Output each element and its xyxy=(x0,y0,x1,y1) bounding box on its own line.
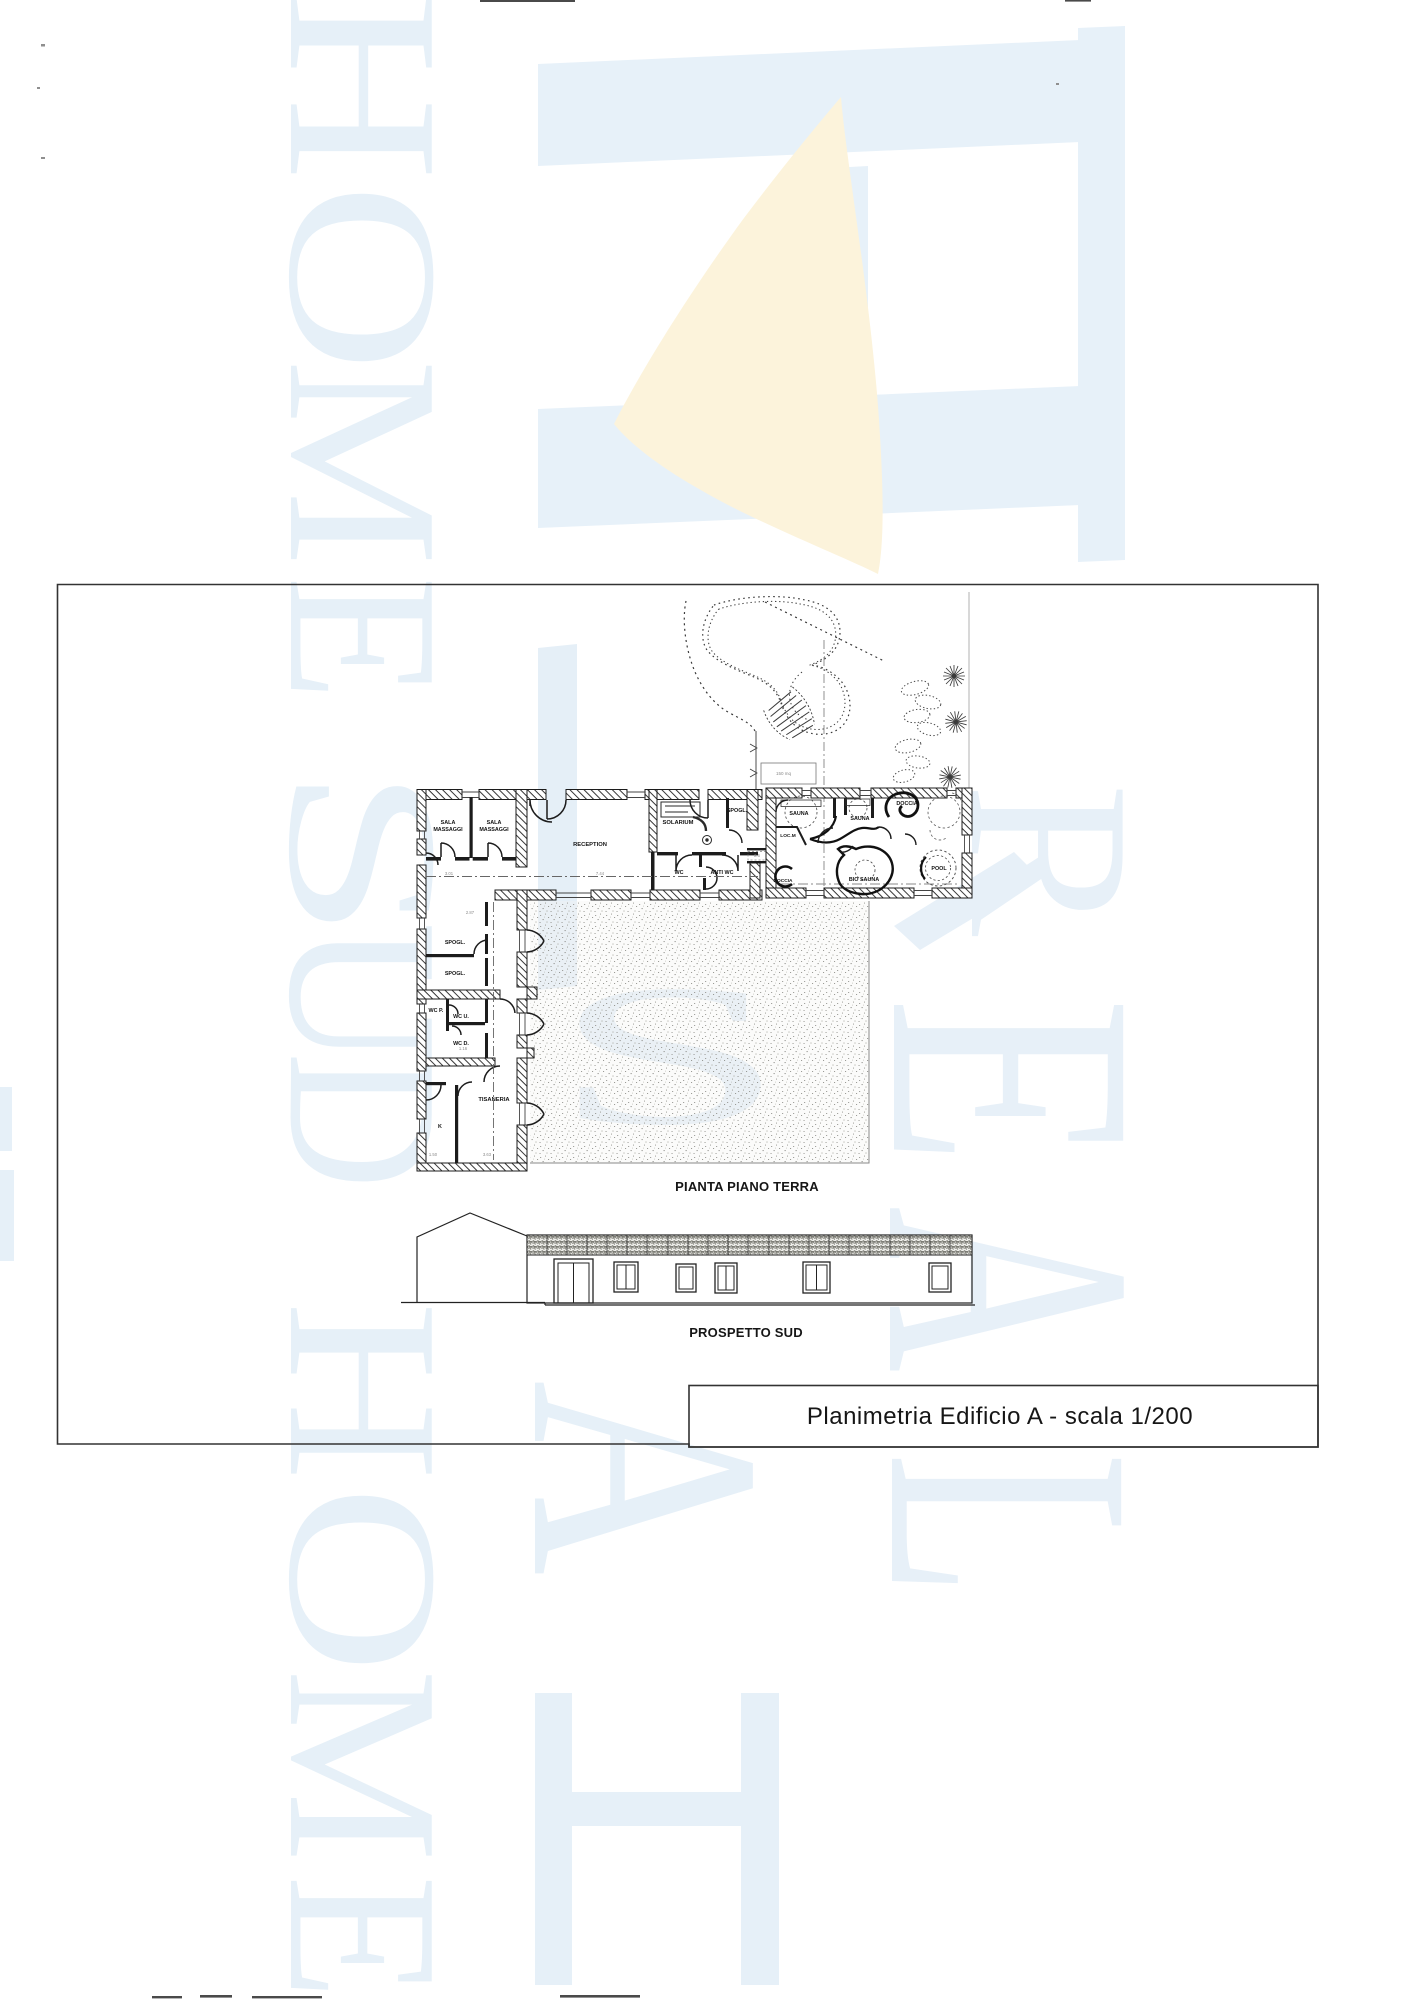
svg-text:WC U.: WC U. xyxy=(453,1014,469,1020)
svg-text:SAUNA: SAUNA xyxy=(789,811,808,817)
svg-text:H: H xyxy=(244,0,483,181)
svg-text:DOCCIA: DOCCIA xyxy=(774,878,793,884)
svg-text:SPOGL.: SPOGL. xyxy=(445,940,466,946)
svg-text:1.50: 1.50 xyxy=(429,1152,438,1157)
svg-text:SPOGL.: SPOGL. xyxy=(727,808,748,814)
svg-text:MASSAGGI: MASSAGGI xyxy=(433,827,463,833)
svg-text:Planimetria Edificio A - scala: Planimetria Edificio A - scala 1/200 xyxy=(807,1403,1193,1430)
svg-text:WC: WC xyxy=(675,870,684,876)
svg-text:E: E xyxy=(244,1875,483,2000)
svg-text:2.6: 2.6 xyxy=(754,853,760,858)
svg-text:SALA: SALA xyxy=(441,820,456,826)
svg-text:7.44: 7.44 xyxy=(596,871,605,876)
svg-text:SALA: SALA xyxy=(487,820,502,826)
svg-text:1.16: 1.16 xyxy=(459,1046,468,1051)
svg-text:3.63: 3.63 xyxy=(483,1152,492,1157)
svg-text:PROSPETTO SUD: PROSPETTO SUD xyxy=(689,1325,803,1340)
svg-text:A: A xyxy=(463,1380,828,1575)
svg-text:M: M xyxy=(244,1669,483,1862)
svg-text:E: E xyxy=(817,997,1204,1166)
svg-text:SPOGL.: SPOGL. xyxy=(445,971,466,977)
svg-text:ANTI WC: ANTI WC xyxy=(710,870,733,876)
svg-text:DOCCIA: DOCCIA xyxy=(896,801,917,807)
svg-text:SAUNA: SAUNA xyxy=(850,816,869,822)
svg-text:TISANERIA: TISANERIA xyxy=(478,1097,510,1103)
svg-text:K: K xyxy=(438,1124,442,1130)
svg-text:WC P.: WC P. xyxy=(429,1008,444,1014)
svg-text:150 mq: 150 mq xyxy=(776,771,792,776)
svg-text:A: A xyxy=(813,1206,1205,1372)
svg-text:3.01: 3.01 xyxy=(445,871,454,876)
svg-text:POOL: POOL xyxy=(931,866,947,872)
svg-text:MASSAGGI: MASSAGGI xyxy=(479,827,509,833)
svg-text:LOC.M: LOC.M xyxy=(780,833,795,839)
svg-text:PIANTA PIANO TERRA: PIANTA PIANO TERRA xyxy=(675,1179,819,1194)
svg-text:H: H xyxy=(244,1301,483,1481)
svg-text:2.87: 2.87 xyxy=(466,910,475,915)
svg-text:RECEPTION: RECEPTION xyxy=(573,842,607,848)
svg-text:E: E xyxy=(244,576,483,701)
svg-text:M: M xyxy=(244,359,483,566)
svg-text:O: O xyxy=(244,183,483,372)
svg-text:SOLARIUM: SOLARIUM xyxy=(663,820,694,826)
svg-text:O: O xyxy=(244,1485,483,1674)
svg-text:L: L xyxy=(816,1452,1204,1597)
svg-text:BIO SAUNA: BIO SAUNA xyxy=(849,877,879,883)
